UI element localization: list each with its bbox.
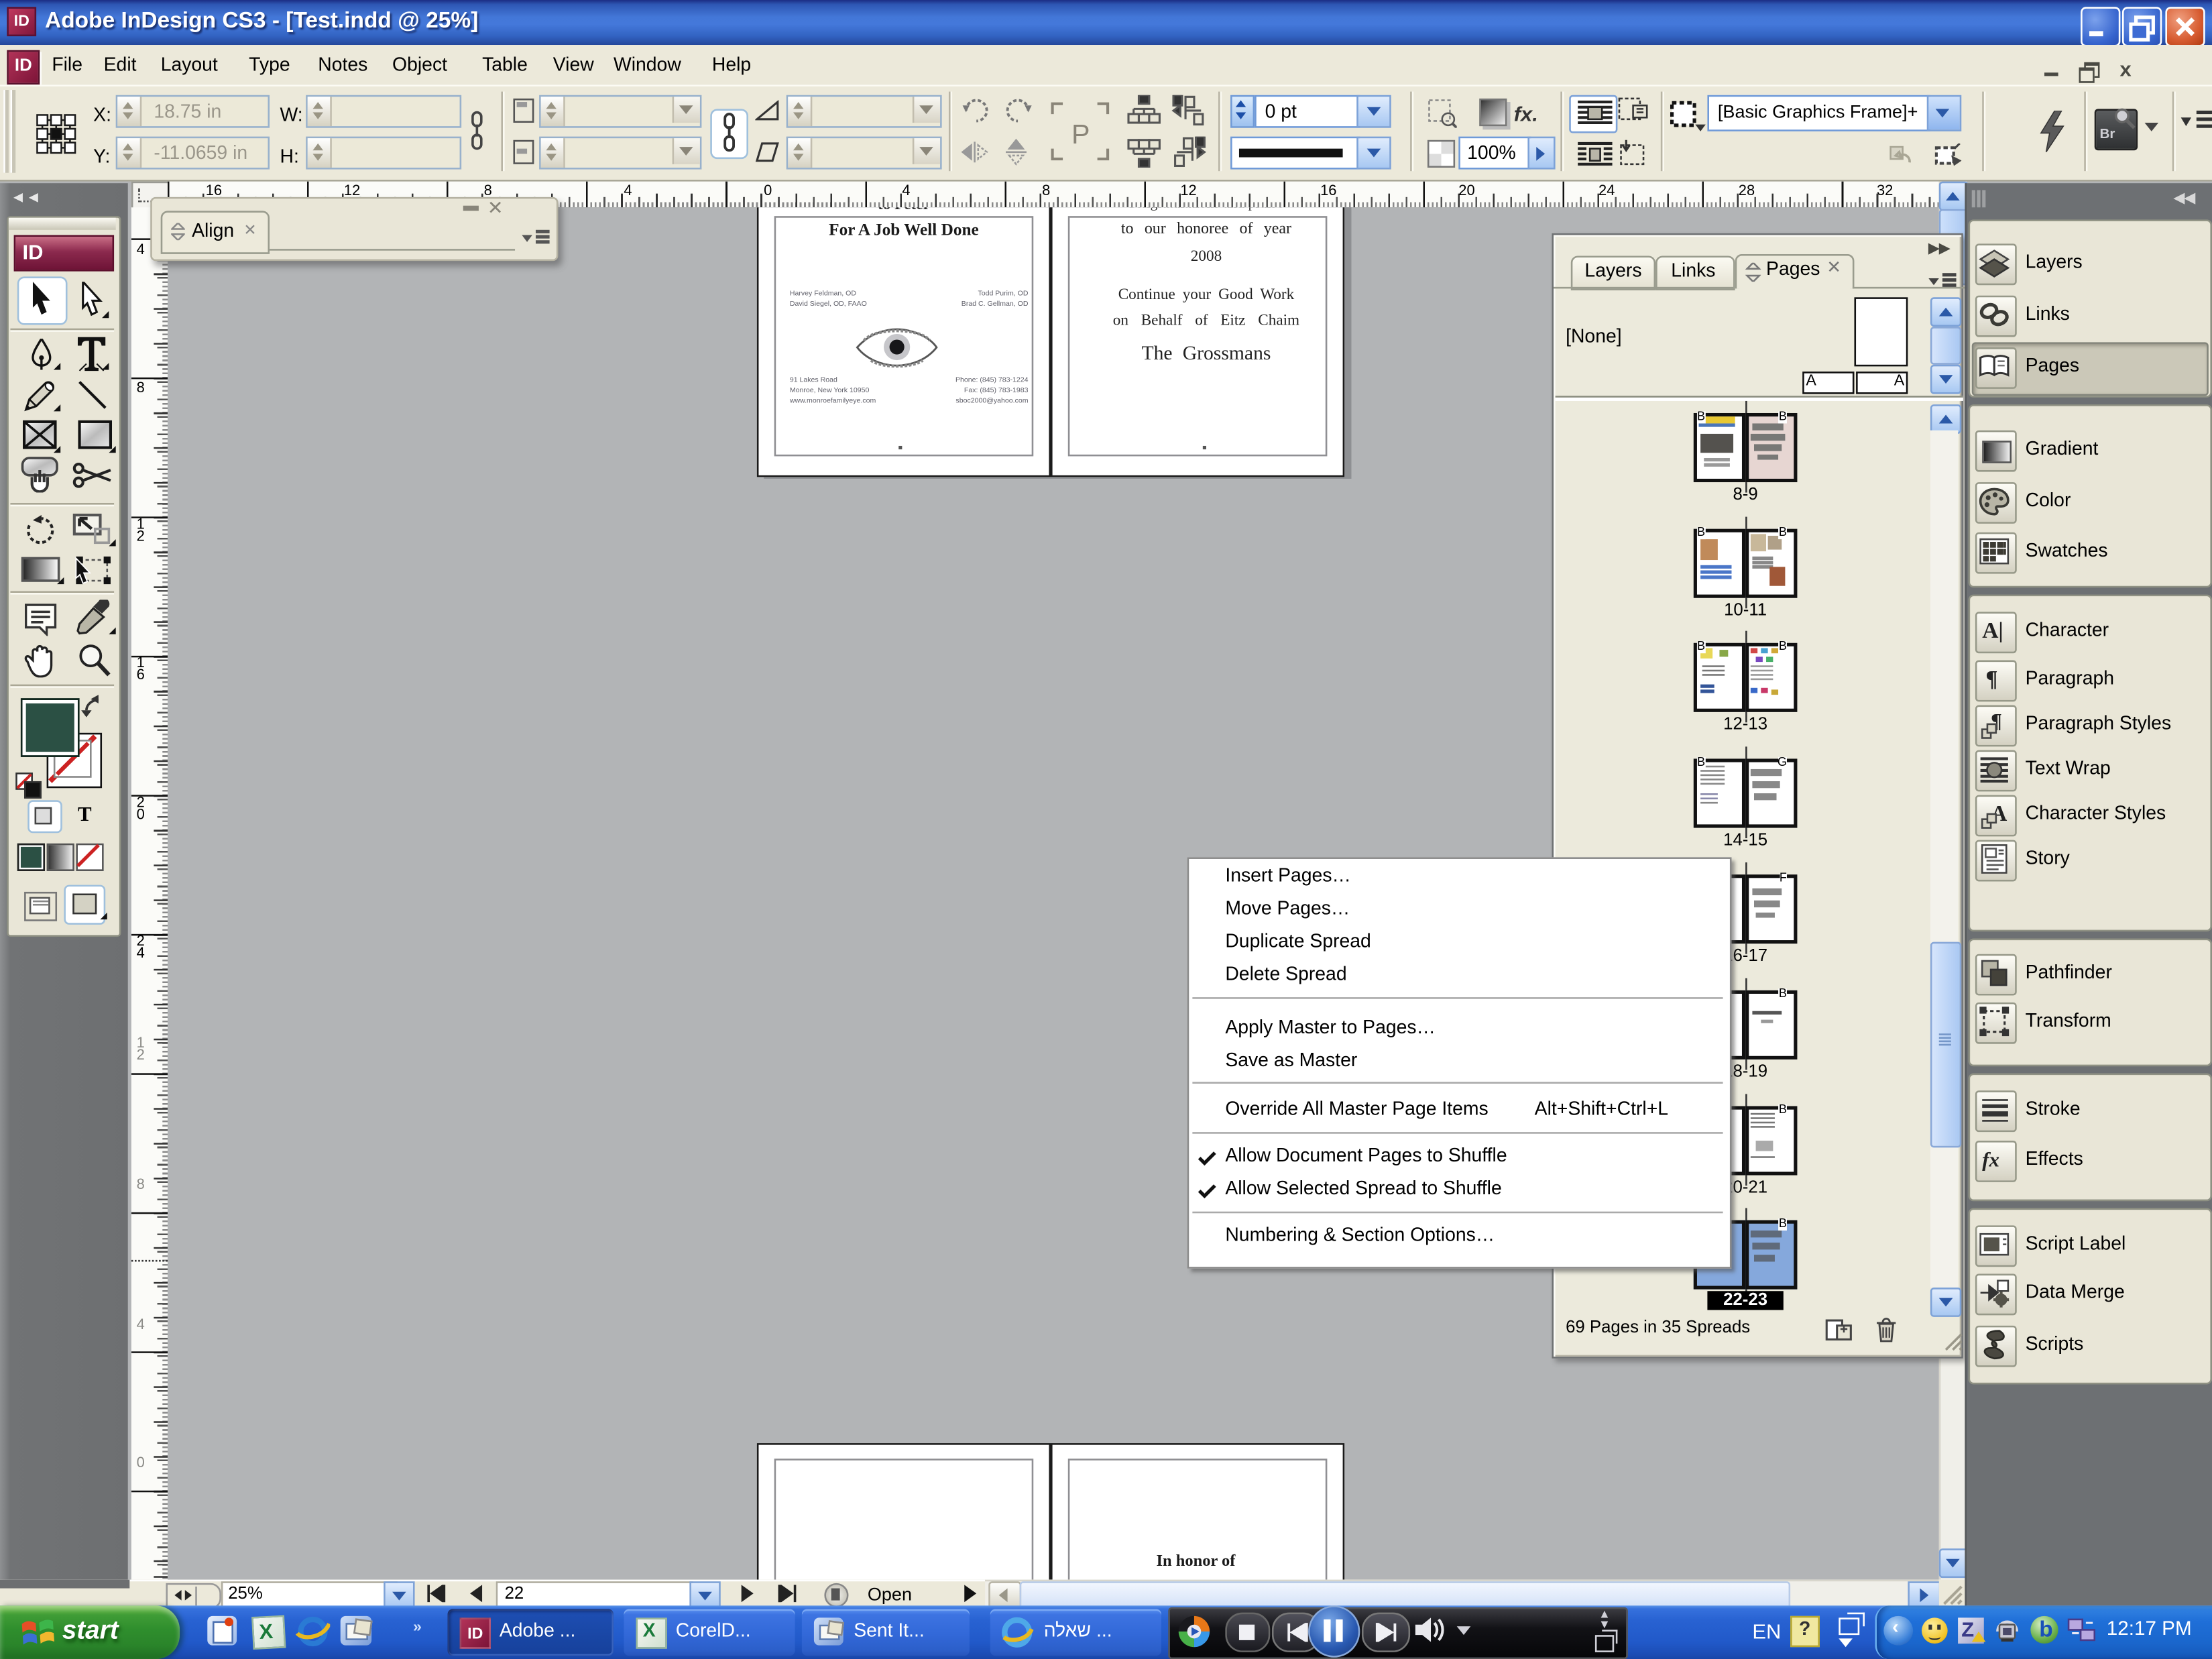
svg-text:P: P xyxy=(1071,119,1090,150)
